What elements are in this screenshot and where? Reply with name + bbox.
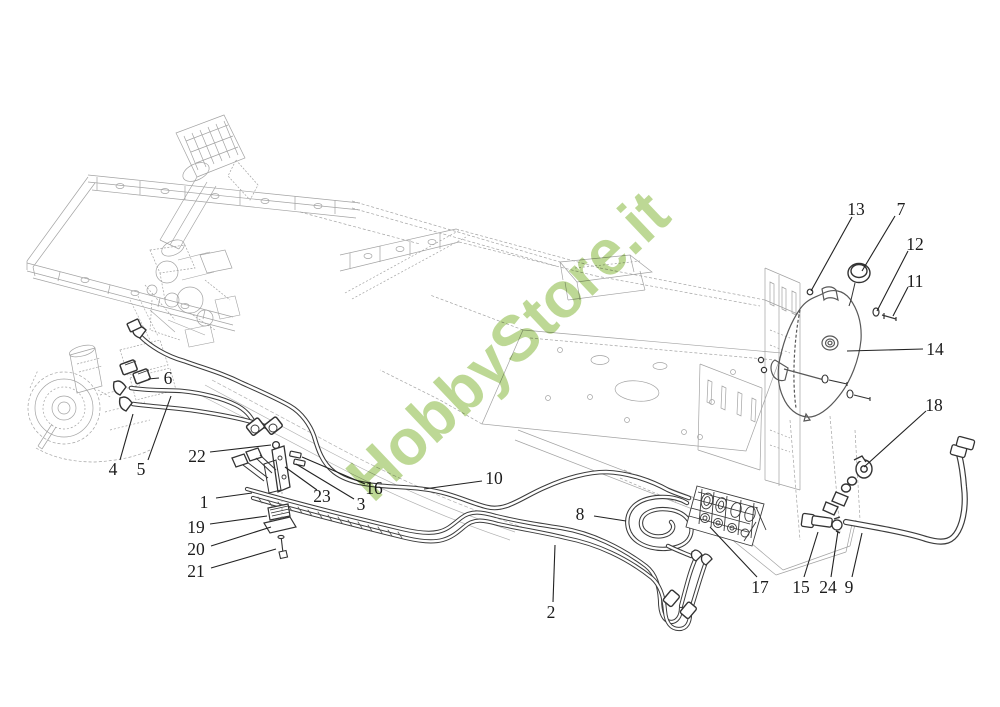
svg-text:8: 8: [576, 504, 585, 524]
svg-text:21: 21: [187, 561, 205, 581]
svg-text:11: 11: [907, 271, 924, 291]
svg-text:HobbyStore.it: HobbyStore.it: [332, 176, 683, 514]
svg-text:18: 18: [925, 395, 943, 415]
svg-text:6: 6: [164, 368, 173, 388]
svg-text:22: 22: [188, 446, 206, 466]
svg-text:12: 12: [906, 234, 924, 254]
svg-text:1: 1: [200, 492, 209, 512]
svg-text:13: 13: [847, 199, 865, 219]
svg-text:23: 23: [313, 486, 331, 506]
svg-text:4: 4: [109, 459, 118, 479]
svg-text:10: 10: [485, 468, 503, 488]
svg-text:19: 19: [187, 517, 205, 537]
svg-text:2: 2: [547, 602, 556, 622]
svg-text:3: 3: [357, 494, 366, 514]
svg-text:15: 15: [792, 577, 810, 597]
svg-text:14: 14: [926, 339, 944, 359]
svg-text:24: 24: [819, 577, 837, 597]
svg-text:17: 17: [751, 577, 769, 597]
svg-text:9: 9: [845, 577, 854, 597]
svg-text:20: 20: [187, 539, 205, 559]
svg-text:5: 5: [137, 459, 146, 479]
svg-text:7: 7: [897, 199, 906, 219]
